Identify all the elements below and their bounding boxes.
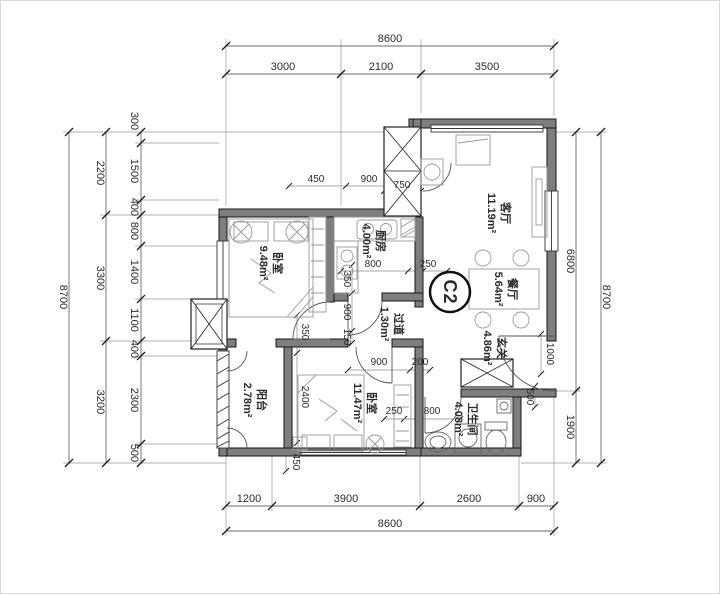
dim-int-v7: 500	[524, 389, 535, 406]
dim-bottom-seg2: 2600	[457, 493, 481, 505]
room-label-dining: 餐厅 5.64m²	[492, 272, 520, 307]
room-label-bedroom2: 卧室 11.47m²	[351, 383, 379, 424]
living-corner-circle	[424, 164, 440, 180]
dim-left-inner0: 300	[128, 112, 140, 130]
dim-int-h7: 250	[386, 406, 403, 417]
dim-labels-bottom: 1200 3900 2600 900 8600	[237, 493, 545, 530]
dining-stool-1	[475, 250, 491, 266]
dim-left-inner6: 400	[128, 340, 140, 358]
extension-lines	[63, 39, 607, 536]
tv-cabinet-north-line	[458, 139, 488, 143]
room-area: 5.64m²	[492, 272, 504, 307]
room-area: 9.48m²	[257, 246, 269, 281]
room-area: 2.78m²	[241, 383, 253, 418]
dining-stool-3	[475, 312, 491, 328]
wall-bath-south	[416, 448, 521, 456]
dim-int-v5: 450	[290, 454, 301, 471]
bed1-pillow-left	[234, 222, 268, 241]
dim-int-h8: 800	[424, 406, 441, 417]
kitchen-hatch-lines	[401, 219, 415, 237]
dim-labels-right: 6800 1900 8700	[564, 249, 612, 439]
dim-left-inner4: 1400	[128, 260, 140, 284]
wall-entry-south	[461, 389, 556, 397]
bed2-pillow-right	[334, 435, 362, 449]
room-name: 餐厅	[506, 277, 520, 300]
room-area: 11.19m²	[485, 193, 497, 234]
wall-bedroom1-east	[326, 217, 334, 302]
dim-int-v3: 350	[299, 324, 310, 341]
wall-kitchen-south-a	[334, 293, 348, 301]
dim-bottom-seg0: 1200	[237, 493, 261, 505]
flue-shaft-box	[384, 127, 421, 216]
room-area: 1.30m²	[378, 307, 390, 342]
floorplan-canvas: C2 客厅 11.19m² 餐厅 5.64m² 厨房 4.00m² 过道 1.3…	[1, 1, 720, 595]
dim-left-inner5: 1100	[128, 308, 140, 332]
room-name: 客厅	[499, 201, 513, 224]
room-label-living: 客厅 11.19m²	[485, 193, 513, 234]
dim-right-total: 8700	[600, 285, 612, 309]
room-name: 卧室	[365, 392, 379, 414]
dining-stool-2	[513, 250, 529, 266]
room-label-bedroom1: 卧室 9.48m²	[257, 246, 285, 281]
tv-panel	[536, 179, 542, 225]
dim-int-v6: 1000	[544, 343, 555, 366]
dim-int-v4: 2400	[299, 386, 310, 409]
dim-int-h3: 800	[365, 259, 382, 270]
dim-int-h6: 200	[412, 357, 429, 368]
dimension-extension-lines	[63, 39, 607, 536]
room-name: 过道	[392, 313, 406, 335]
stove-burner-top	[341, 250, 353, 262]
room-area: 4.08m²	[452, 402, 464, 437]
dim-int-h5: 900	[371, 357, 388, 368]
dim-int-h1: 900	[361, 174, 378, 185]
dim-top-total: 8600	[378, 33, 402, 45]
dim-top-seg1: 2100	[369, 61, 393, 73]
washbasin-inner	[430, 436, 446, 448]
room-area: 4.00m²	[360, 224, 372, 259]
dim-bottom-seg1: 3900	[334, 493, 358, 505]
dim-left-inner1: 1500	[128, 159, 140, 183]
bath-corner-sink	[497, 399, 511, 413]
wall-balcony-east	[284, 347, 292, 448]
dim-bottom-total: 8600	[378, 518, 402, 530]
wall-bath-east	[513, 397, 521, 456]
dim-int-h2: 750	[394, 180, 411, 191]
dim-left-mid2: 3200	[94, 390, 106, 414]
dim-left-inner8: 500	[128, 444, 140, 462]
room-label-balcony: 阳台 2.78m²	[241, 383, 269, 418]
toilet-tank	[485, 422, 507, 430]
dim-int-h0: 450	[308, 174, 325, 185]
dim-left-inner7: 2300	[128, 388, 140, 412]
room-area: 4.86m²	[481, 331, 493, 366]
wall-kitchen-south-b	[382, 293, 423, 301]
dim-bottom-seg3: 900	[527, 493, 545, 505]
room-area: 11.47m²	[351, 383, 363, 424]
dim-int-v1: 900	[341, 304, 352, 321]
wardrobe1	[309, 217, 326, 312]
room-label-bathroom: 卫生间 4.08m²	[452, 402, 480, 437]
interior-dim-lines	[286, 186, 541, 471]
dim-int-h4: 250	[420, 259, 437, 270]
dim-left-inner2: 400	[128, 198, 140, 216]
dim-top-seg2: 3500	[475, 61, 499, 73]
room-name: 玄关	[495, 337, 509, 359]
room-label-corridor: 过道 1.30m²	[378, 307, 406, 342]
bath-corner-sink-basin	[500, 402, 508, 410]
dim-left-inner3: 800	[128, 222, 140, 240]
wardrobe2-hangers	[396, 395, 409, 441]
room-name: 卧室	[271, 252, 285, 274]
dim-left-mid0: 2200	[94, 161, 106, 185]
dim-int-v2: 150	[341, 329, 352, 346]
wall-east-upper	[547, 128, 556, 191]
dim-labels-top: 8600 3000 2100 3500	[271, 33, 499, 73]
bed1-sidelamp-left-x	[233, 224, 249, 240]
dim-left-total: 8700	[57, 285, 69, 309]
shafts	[191, 127, 513, 387]
room-name: 阳台	[255, 389, 269, 411]
main-dim-ticks	[65, 42, 605, 535]
dim-right-inner1: 1900	[564, 415, 576, 439]
dining-stool-4	[513, 312, 529, 328]
bed1-sidelamp-right-x	[289, 224, 305, 240]
unit-badge-label: C2	[440, 279, 460, 304]
room-name: 卫生间	[466, 403, 480, 436]
dim-left-mid1: 3300	[94, 266, 106, 290]
bed1	[229, 219, 313, 317]
unit-badge: C2	[430, 272, 470, 312]
wall-bedroom1-south-b	[276, 339, 348, 347]
balcony-window-swing-top	[227, 351, 247, 371]
dimension-ticks	[65, 42, 605, 535]
wall-bedroom2-north	[392, 339, 423, 347]
living-corner-door-arc	[423, 163, 451, 191]
floorplan-page: C2 客厅 11.19m² 餐厅 5.64m² 厨房 4.00m² 过道 1.3…	[0, 0, 720, 594]
bedroom1-door-arc	[293, 302, 330, 339]
dim-top-seg0: 3000	[271, 61, 295, 73]
room-name: 厨房	[374, 230, 388, 252]
room-labels: 客厅 11.19m² 餐厅 5.64m² 厨房 4.00m² 过道 1.30m²…	[241, 193, 520, 437]
wall-east-mid	[547, 251, 556, 341]
dim-int-v0: 350	[341, 271, 352, 288]
balcony-window-swing-bottom	[227, 428, 247, 448]
dim-right-inner0: 6800	[564, 249, 576, 273]
